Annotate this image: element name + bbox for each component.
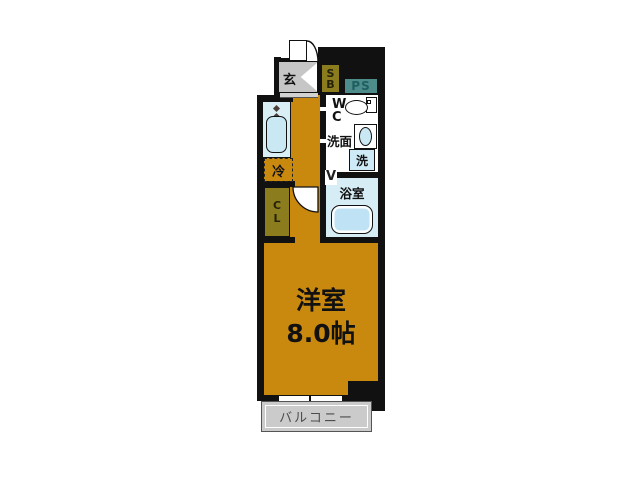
balcony-area: バルコニー xyxy=(261,401,372,432)
bathroom-label: 浴室 xyxy=(326,183,378,202)
entrance-door-arc-icon xyxy=(307,41,318,62)
entrance-step xyxy=(280,93,318,98)
washer-label: 洗 xyxy=(356,152,368,169)
wall-bath-bottom xyxy=(320,237,385,243)
wc-label: W C xyxy=(332,98,346,124)
pipe-shaft: PS xyxy=(345,79,377,93)
shoe-box: S B xyxy=(321,64,340,93)
toilet-bowl-icon xyxy=(345,100,368,115)
toilet-flush-icon xyxy=(367,100,371,104)
main-room-size: 8.0帖 xyxy=(264,317,378,350)
entrance-door-leaf-icon xyxy=(289,40,307,61)
shoe-box-label-2: B xyxy=(326,79,334,90)
washstand-label: 洗面 xyxy=(327,131,352,150)
washbasin-bowl-icon xyxy=(359,127,372,146)
refrigerator-box: 冷 xyxy=(264,158,293,182)
entrance-label: 玄 xyxy=(283,69,296,88)
wall-closet-bottom xyxy=(257,237,295,243)
balcony-label: バルコニー xyxy=(279,407,354,426)
wall-right xyxy=(378,95,385,401)
kitchen-sink-icon xyxy=(266,116,287,153)
bath-folding-door-icon: V xyxy=(325,170,337,185)
door-opening-mark xyxy=(320,107,326,111)
refrigerator-label: 冷 xyxy=(272,161,285,180)
closet-label-1: C xyxy=(273,199,281,212)
door-opening-mark xyxy=(320,139,326,143)
bathtub-icon xyxy=(331,205,373,234)
washer-box: 洗 xyxy=(349,149,375,171)
closet-box: C L xyxy=(264,187,290,237)
shoe-box-label-1: S xyxy=(327,68,335,79)
floor-plan: 玄 S B PS 冷 C L W C 洗面 洗 浴室 V 洋室 8.0帖 xyxy=(0,0,640,480)
closet-label-2: L xyxy=(273,212,280,225)
pipe-shaft-label: PS xyxy=(351,79,370,93)
main-room-label: 洋室 8.0帖 xyxy=(264,284,378,350)
main-room-name: 洋室 xyxy=(264,284,378,317)
